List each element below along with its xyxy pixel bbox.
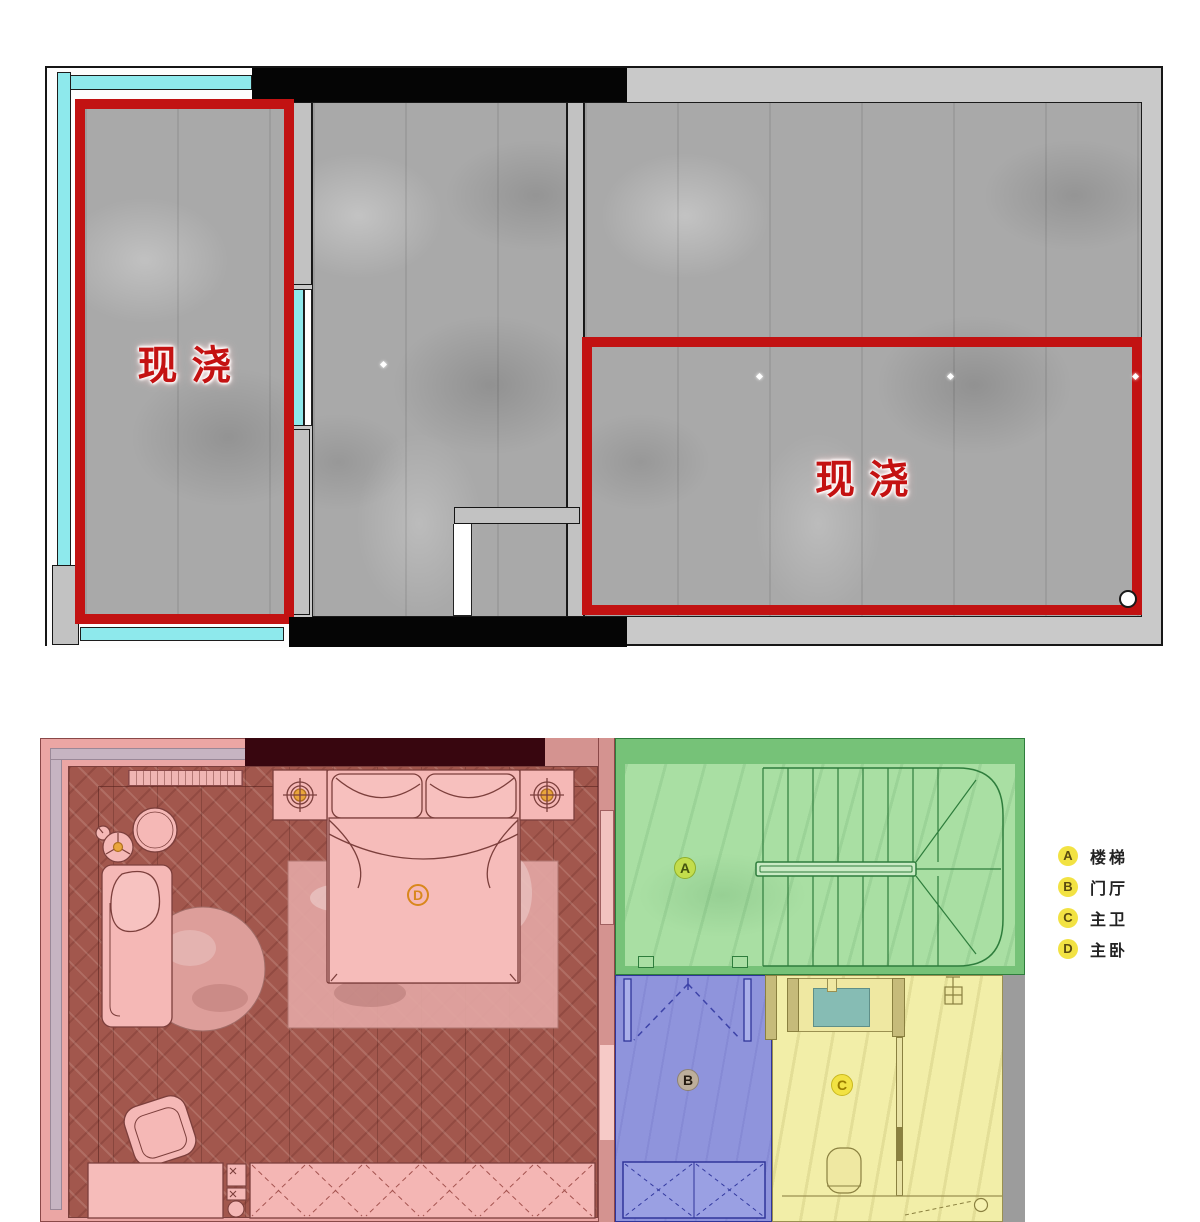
legend-badge-a: A xyxy=(1058,846,1078,866)
nightstand-left xyxy=(273,770,327,820)
wall-l-shaped xyxy=(454,507,580,524)
legend-row-master-bedroom: D 主卧 xyxy=(1058,933,1188,964)
zoned-floor-plan: A B C D xyxy=(40,738,1025,1222)
zone-b-badge: B xyxy=(677,1069,699,1091)
desk xyxy=(88,1163,223,1218)
wall-top-black xyxy=(252,68,627,102)
zone-c-badge: C xyxy=(831,1074,853,1096)
chaise-sofa xyxy=(102,865,172,1027)
window-mid-left-sill xyxy=(304,289,312,426)
slab-middle-room xyxy=(312,102,567,617)
legend-badge-c: C xyxy=(1058,908,1078,928)
legend-badge-d: D xyxy=(1058,939,1078,959)
legend-label-foyer: 门厅 xyxy=(1090,875,1128,899)
zone-a-badge: A xyxy=(674,857,696,879)
cast-in-place-zone-2: 现浇 xyxy=(582,337,1142,615)
legend-label-master-bath: 主卫 xyxy=(1090,906,1128,930)
nightstand-right xyxy=(520,770,574,820)
shower-head-icon xyxy=(945,977,962,1004)
window-band-top xyxy=(60,75,252,90)
side-unit xyxy=(227,1164,246,1217)
wardrobe xyxy=(250,1163,595,1218)
legend-row-stairs: A 楼梯 xyxy=(1058,840,1188,871)
armchair xyxy=(120,1092,200,1171)
staircase xyxy=(756,768,1003,966)
zone-d-letter: D xyxy=(413,888,423,902)
cast-in-place-zone-1: 现浇 xyxy=(75,99,294,624)
plan-linework xyxy=(40,738,1025,1222)
cast-in-place-label-1: 现浇 xyxy=(124,333,246,391)
window-band-bottom xyxy=(80,627,284,641)
zone-a-letter: A xyxy=(680,861,690,875)
legend-row-foyer: B 门厅 xyxy=(1058,871,1188,902)
door-opening-middle xyxy=(453,524,472,616)
toilet xyxy=(827,1148,861,1193)
legend-label-master-bedroom: 主卧 xyxy=(1090,937,1128,961)
zone-b-letter: B xyxy=(683,1073,693,1087)
floor-plan-canvas: 现浇 现浇 xyxy=(0,0,1200,1222)
side-table xyxy=(133,808,177,852)
survey-point-circle xyxy=(1119,590,1137,608)
legend-badge-b: B xyxy=(1058,877,1078,897)
legend: A 楼梯 B 门厅 C 主卫 D 主卧 xyxy=(1058,840,1188,964)
zone-c-letter: C xyxy=(837,1078,847,1092)
foyer-cabinet xyxy=(623,1162,765,1218)
window-band-left xyxy=(57,72,71,624)
cast-in-place-label-2: 现浇 xyxy=(801,447,923,505)
table-fan xyxy=(96,826,133,862)
zone-d-badge: D xyxy=(407,884,429,906)
wall-bottom-black xyxy=(289,617,627,647)
structural-slab-plan: 现浇 现浇 xyxy=(45,66,1163,646)
foyer-door-swings xyxy=(624,978,751,1041)
legend-label-stairs: 楼梯 xyxy=(1090,844,1128,868)
bed xyxy=(327,770,520,983)
shower-floor-drain xyxy=(782,1196,1003,1215)
legend-row-master-bath: C 主卫 xyxy=(1058,902,1188,933)
